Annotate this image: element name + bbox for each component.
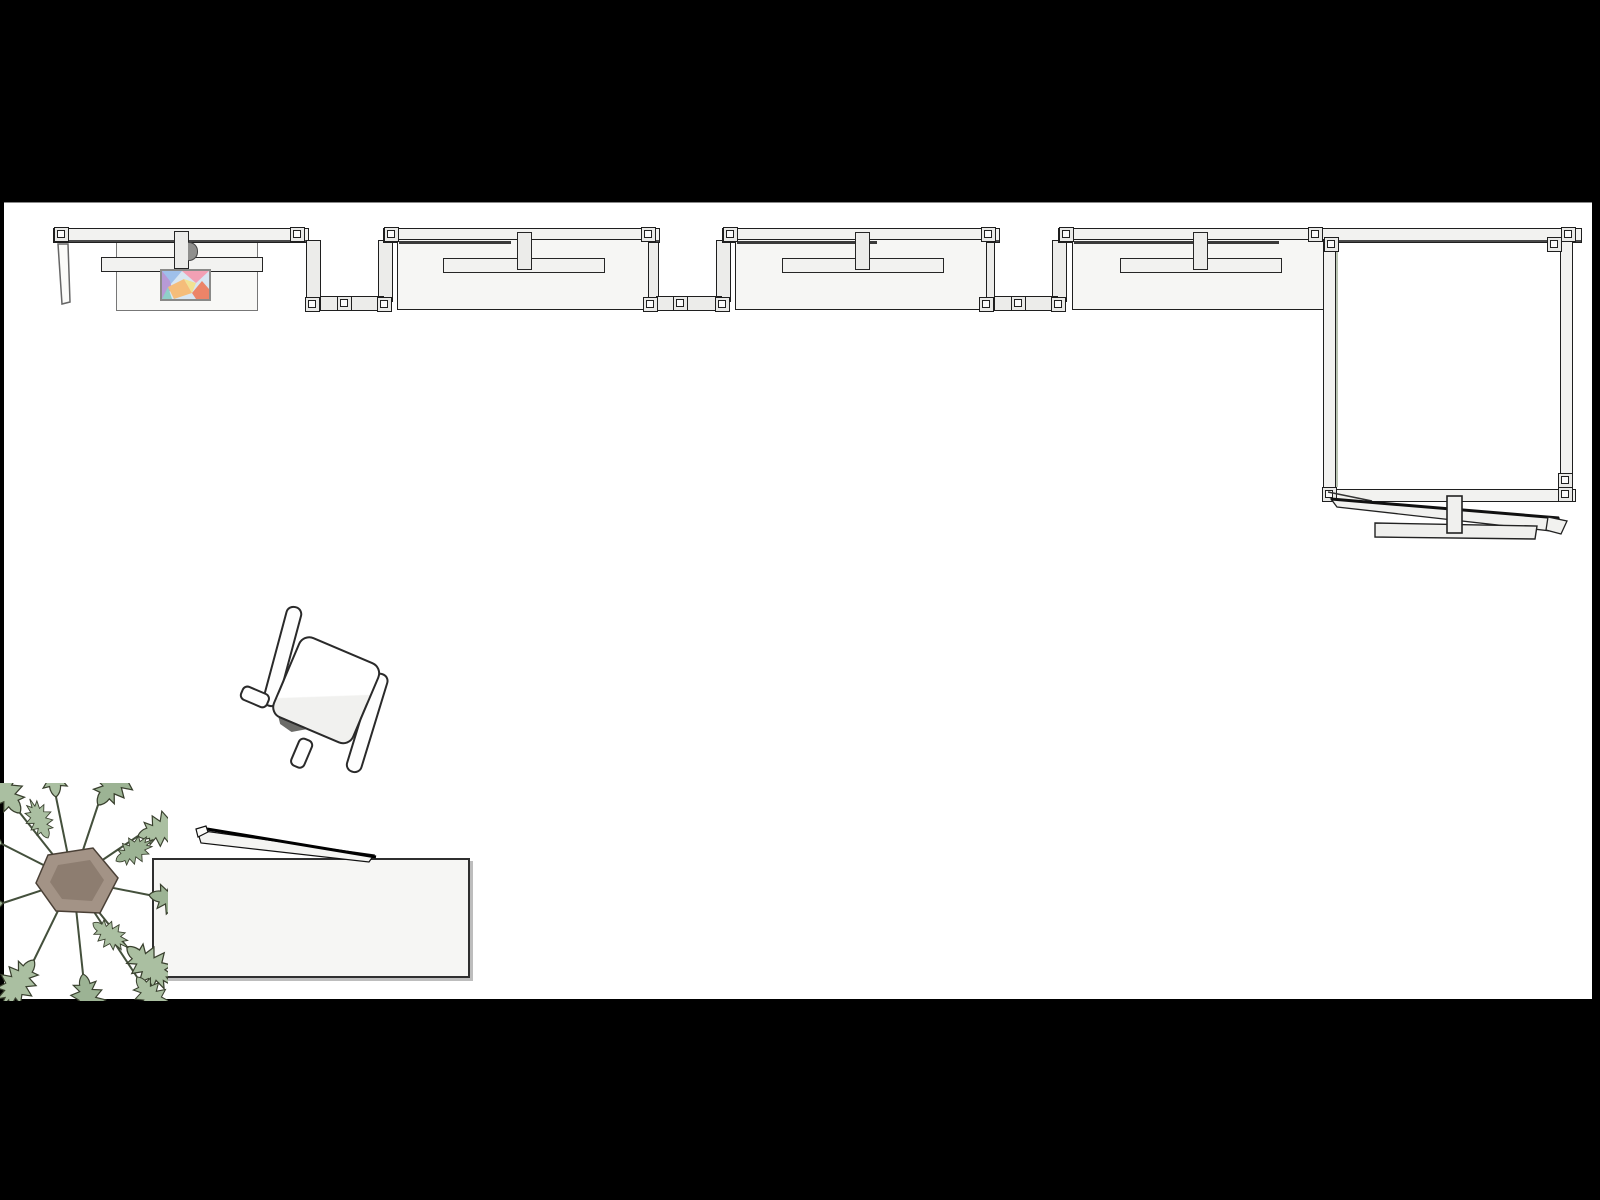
frame-connector xyxy=(723,227,738,242)
viewport xyxy=(0,0,1600,1200)
frame-low-bar xyxy=(994,296,1058,311)
frame-connector xyxy=(1011,296,1026,311)
frame-connector xyxy=(1558,473,1573,488)
frame-connector xyxy=(979,297,994,312)
frame-connector xyxy=(337,296,352,311)
frame-column xyxy=(378,240,393,302)
frame-connector xyxy=(981,227,996,242)
room-wall-left xyxy=(1323,241,1336,502)
frame-connector xyxy=(1322,487,1337,502)
frame-connector xyxy=(1059,227,1074,242)
room-wall-bottom xyxy=(1323,489,1576,502)
panel-post xyxy=(855,232,870,270)
frame-connector xyxy=(377,297,392,312)
panel-shadow-line xyxy=(399,241,511,244)
frame-connector xyxy=(290,227,305,242)
frame-connector xyxy=(305,297,320,312)
frame-connector xyxy=(1561,227,1576,242)
frame-connector xyxy=(715,297,730,312)
panel-post xyxy=(1193,232,1208,270)
frame-connector xyxy=(1558,487,1573,502)
room-wall-right xyxy=(1560,241,1573,502)
frame-connector xyxy=(1547,237,1562,252)
frame-low-bar xyxy=(656,296,722,311)
frame-connector xyxy=(641,227,656,242)
frame-column xyxy=(1052,240,1067,302)
frame-connector xyxy=(1324,237,1339,252)
frame-connector xyxy=(1051,297,1066,312)
desk-post xyxy=(174,231,189,269)
panel-post xyxy=(517,232,532,270)
chair-leg xyxy=(288,736,315,771)
frame-connector xyxy=(673,296,688,311)
frame-connector xyxy=(1308,227,1323,242)
frame-column xyxy=(716,240,731,302)
panel-shadow-line xyxy=(1074,241,1279,244)
frame-connector xyxy=(54,227,69,242)
frame-column xyxy=(306,240,321,302)
room-wall-accent xyxy=(1336,247,1338,487)
frame-connector xyxy=(643,297,658,312)
rectangular-table xyxy=(152,858,470,978)
frame-low-bar xyxy=(320,296,384,311)
frame-connector xyxy=(384,227,399,242)
